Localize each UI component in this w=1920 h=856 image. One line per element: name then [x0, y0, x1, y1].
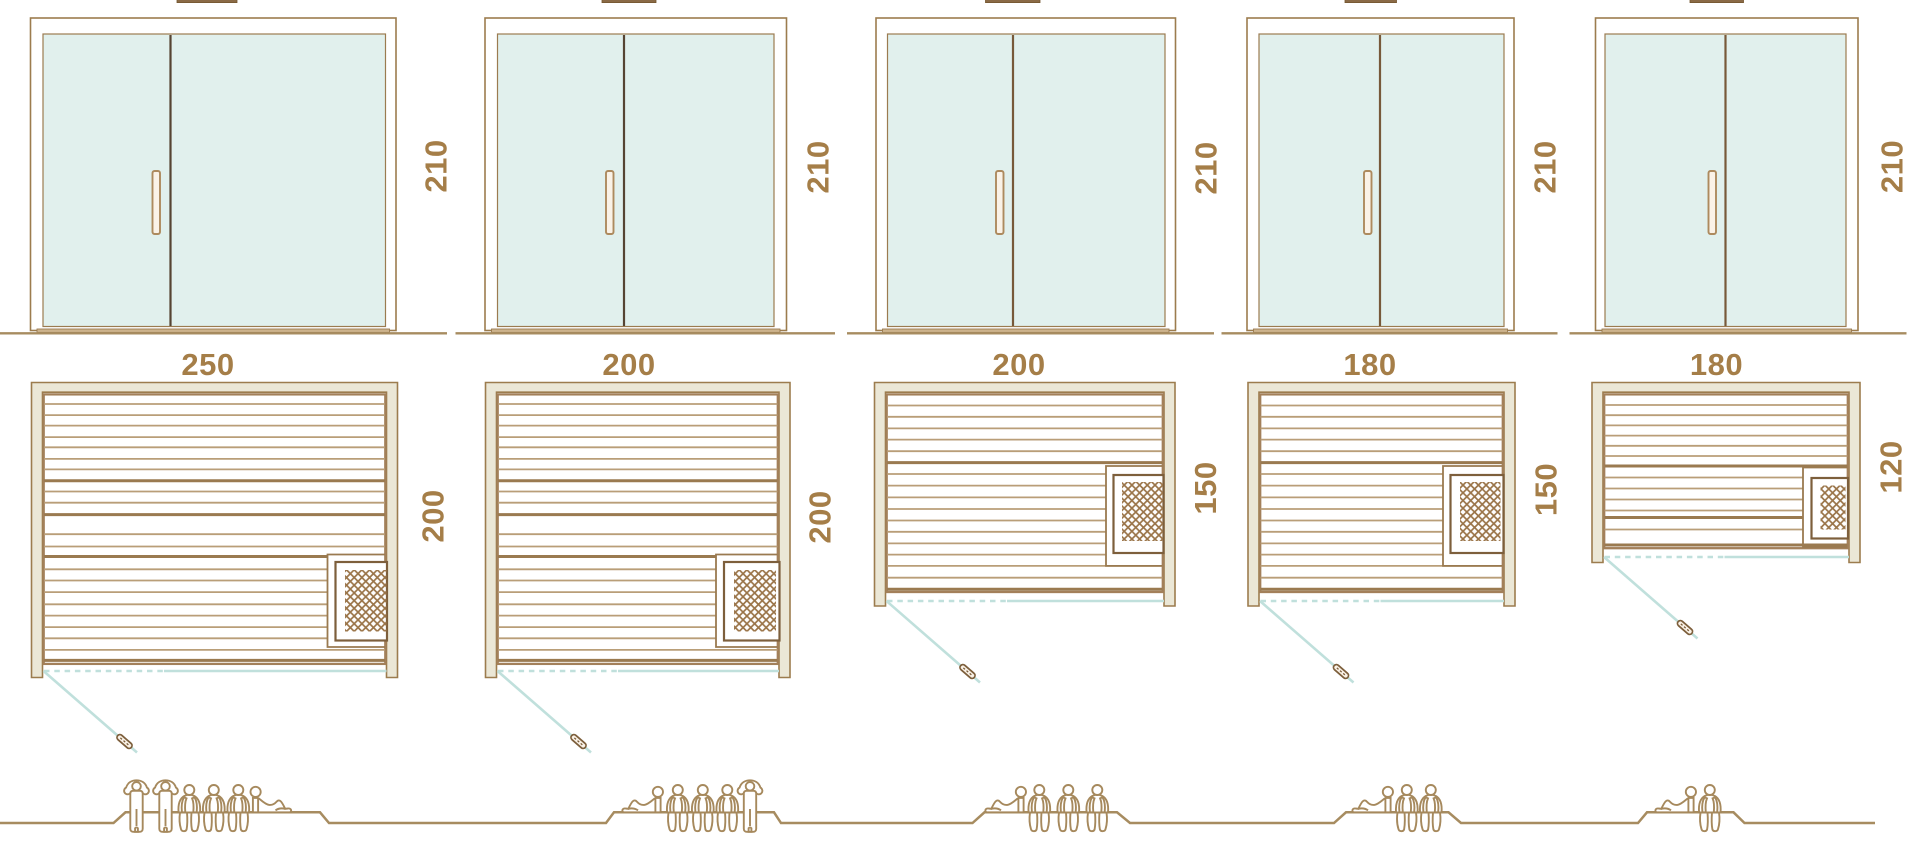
- svg-text:180: 180: [1343, 347, 1396, 382]
- svg-text:200: 200: [803, 490, 838, 543]
- svg-text:150: 150: [1188, 461, 1223, 514]
- svg-text:120: 120: [1874, 440, 1909, 493]
- svg-text:210: 210: [1189, 141, 1224, 194]
- svg-text:200: 200: [992, 347, 1045, 382]
- svg-text:150: 150: [1529, 463, 1564, 516]
- svg-text:210: 210: [419, 139, 454, 192]
- svg-text:250: 250: [181, 347, 234, 382]
- svg-text:210: 210: [801, 140, 836, 193]
- svg-text:180: 180: [1690, 347, 1743, 382]
- svg-text:200: 200: [416, 489, 451, 542]
- svg-text:200: 200: [602, 347, 655, 382]
- svg-text:210: 210: [1528, 140, 1563, 193]
- svg-text:210: 210: [1875, 140, 1910, 193]
